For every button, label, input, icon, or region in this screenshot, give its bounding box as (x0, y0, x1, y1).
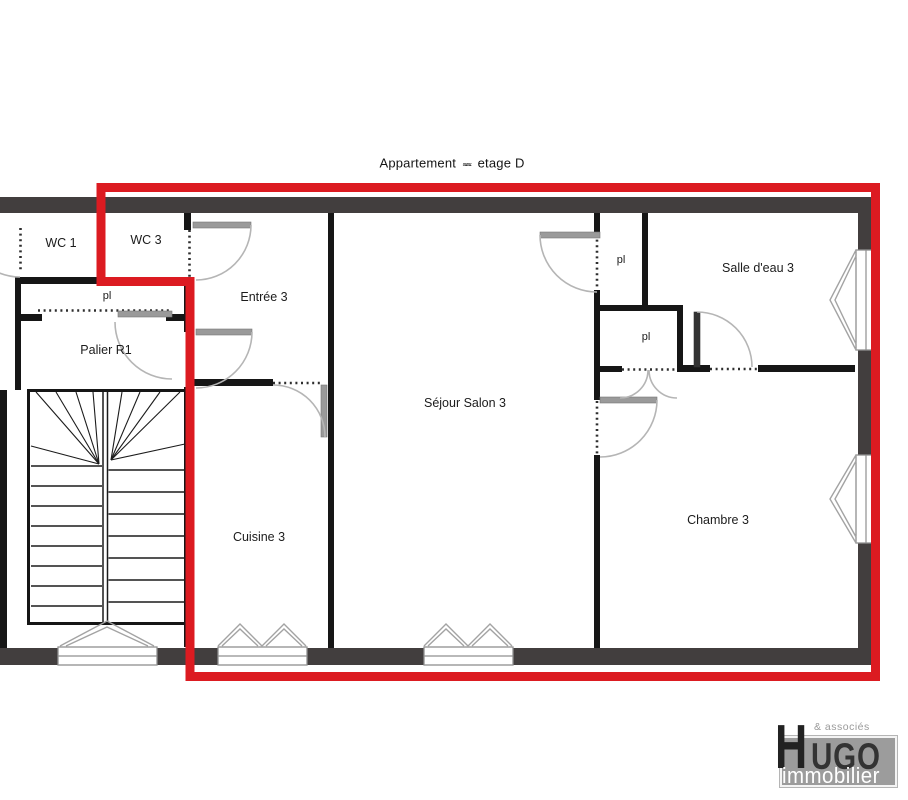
door-swing-arcs (0, 222, 752, 457)
room-label-closet1: pl (617, 254, 626, 266)
floorplan-page: Appartement ≈≈ etage D WC 1 WC 3 pl Pali… (0, 0, 908, 800)
room-label-sejour: Séjour Salon 3 (424, 396, 506, 410)
plan-title-suffix: etage D (478, 156, 525, 171)
logo-associates-text: & associés (814, 721, 870, 733)
room-label-salle-eau: Salle d'eau 3 (722, 261, 794, 275)
room-label-wc3: WC 3 (130, 233, 161, 247)
agency-logo: & associés H UGO immobilier (770, 710, 908, 800)
room-label-palier: Palier R1 (80, 343, 131, 357)
door-leaves (118, 222, 700, 437)
room-label-chambre: Chambre 3 (687, 513, 749, 527)
room-label-cuisine: Cuisine 3 (233, 530, 285, 544)
room-label-closet-hall: pl (103, 290, 112, 302)
window-casement-symbols (60, 250, 856, 646)
logo-tagline: immobilier (782, 765, 880, 787)
plan-title: Appartement ≈≈ etage D (379, 156, 524, 171)
staircase (31, 392, 185, 622)
room-label-wc1: WC 1 (45, 236, 76, 250)
room-label-closet2: pl (642, 331, 651, 343)
plan-title-redacted: ≈≈ (463, 160, 471, 170)
plan-title-prefix: Appartement (379, 156, 456, 171)
room-label-entree: Entrée 3 (240, 290, 287, 304)
